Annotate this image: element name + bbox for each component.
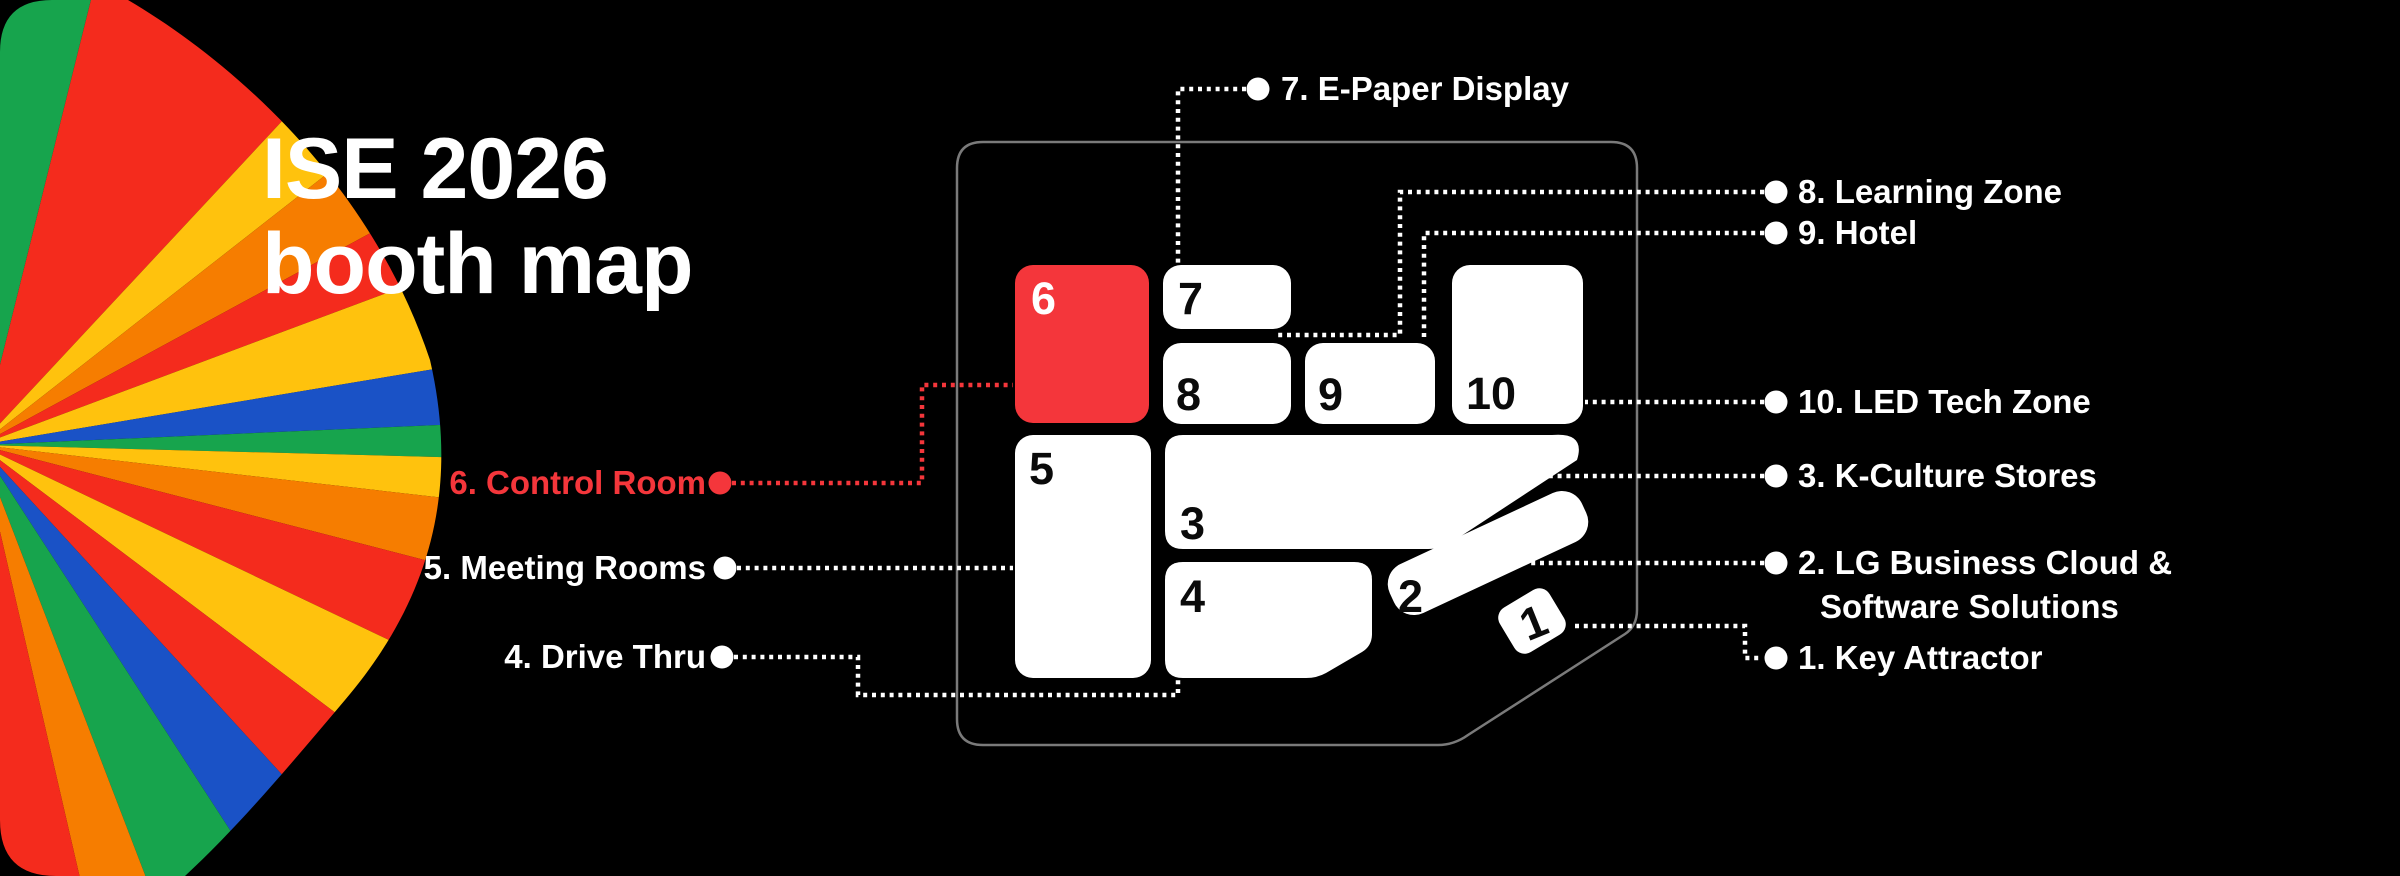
dot-control-room bbox=[709, 472, 732, 495]
dot-k-culture-stores bbox=[1765, 465, 1788, 488]
dot-hotel bbox=[1765, 222, 1788, 245]
dot-meeting-rooms bbox=[714, 557, 737, 580]
dot-lg-business-cloud bbox=[1765, 552, 1788, 575]
page-title-line2: booth map bbox=[262, 217, 693, 312]
label-meeting-rooms: 5. Meeting Rooms bbox=[424, 549, 706, 587]
leader-key-attractor bbox=[1575, 626, 1763, 658]
leader-e-paper-display bbox=[1178, 89, 1246, 263]
booth-8-number: 8 bbox=[1176, 372, 1201, 417]
booth-5-number: 5 bbox=[1029, 446, 1054, 491]
dot-learning-zone bbox=[1765, 181, 1788, 204]
dot-led-tech-zone bbox=[1765, 391, 1788, 414]
booth-6-number: 6 bbox=[1031, 276, 1056, 321]
label-control-room: 6. Control Room bbox=[449, 464, 706, 502]
dot-drive-thru bbox=[711, 646, 734, 669]
page-title: ISE 2026 booth map bbox=[262, 122, 693, 312]
booth-7-number: 7 bbox=[1178, 276, 1203, 321]
dot-key-attractor bbox=[1765, 647, 1788, 670]
label-key-attractor: 1. Key Attractor bbox=[1798, 639, 2043, 677]
booth-3-number: 3 bbox=[1180, 501, 1205, 546]
label-learning-zone: 8. Learning Zone bbox=[1798, 173, 2062, 211]
label-drive-thru: 4. Drive Thru bbox=[504, 638, 706, 676]
booth-10-number: 10 bbox=[1466, 371, 1516, 416]
booth-map-poster: ISE 2026 booth map 6 7 8 9 10 5 3 4 2 1 … bbox=[0, 0, 2400, 876]
label-lg-business-cloud-line2: Software Solutions bbox=[1798, 585, 2172, 629]
label-k-culture-stores: 3. K-Culture Stores bbox=[1798, 457, 2097, 495]
label-hotel: 9. Hotel bbox=[1798, 214, 1917, 252]
page-title-line1: ISE 2026 bbox=[262, 122, 693, 217]
booth-2-number: 2 bbox=[1398, 574, 1423, 619]
booth-9-number: 9 bbox=[1318, 372, 1343, 417]
dot-e-paper-display bbox=[1247, 78, 1270, 101]
booth-4-number: 4 bbox=[1180, 574, 1205, 619]
label-led-tech-zone: 10. LED Tech Zone bbox=[1798, 383, 2091, 421]
label-e-paper-display: 7. E-Paper Display bbox=[1281, 70, 1569, 108]
label-lg-business-cloud-line1: 2. LG Business Cloud & bbox=[1798, 544, 2172, 581]
label-lg-business-cloud: 2. LG Business Cloud & Software Solution… bbox=[1798, 541, 2172, 629]
leader-control-room bbox=[732, 385, 1013, 483]
